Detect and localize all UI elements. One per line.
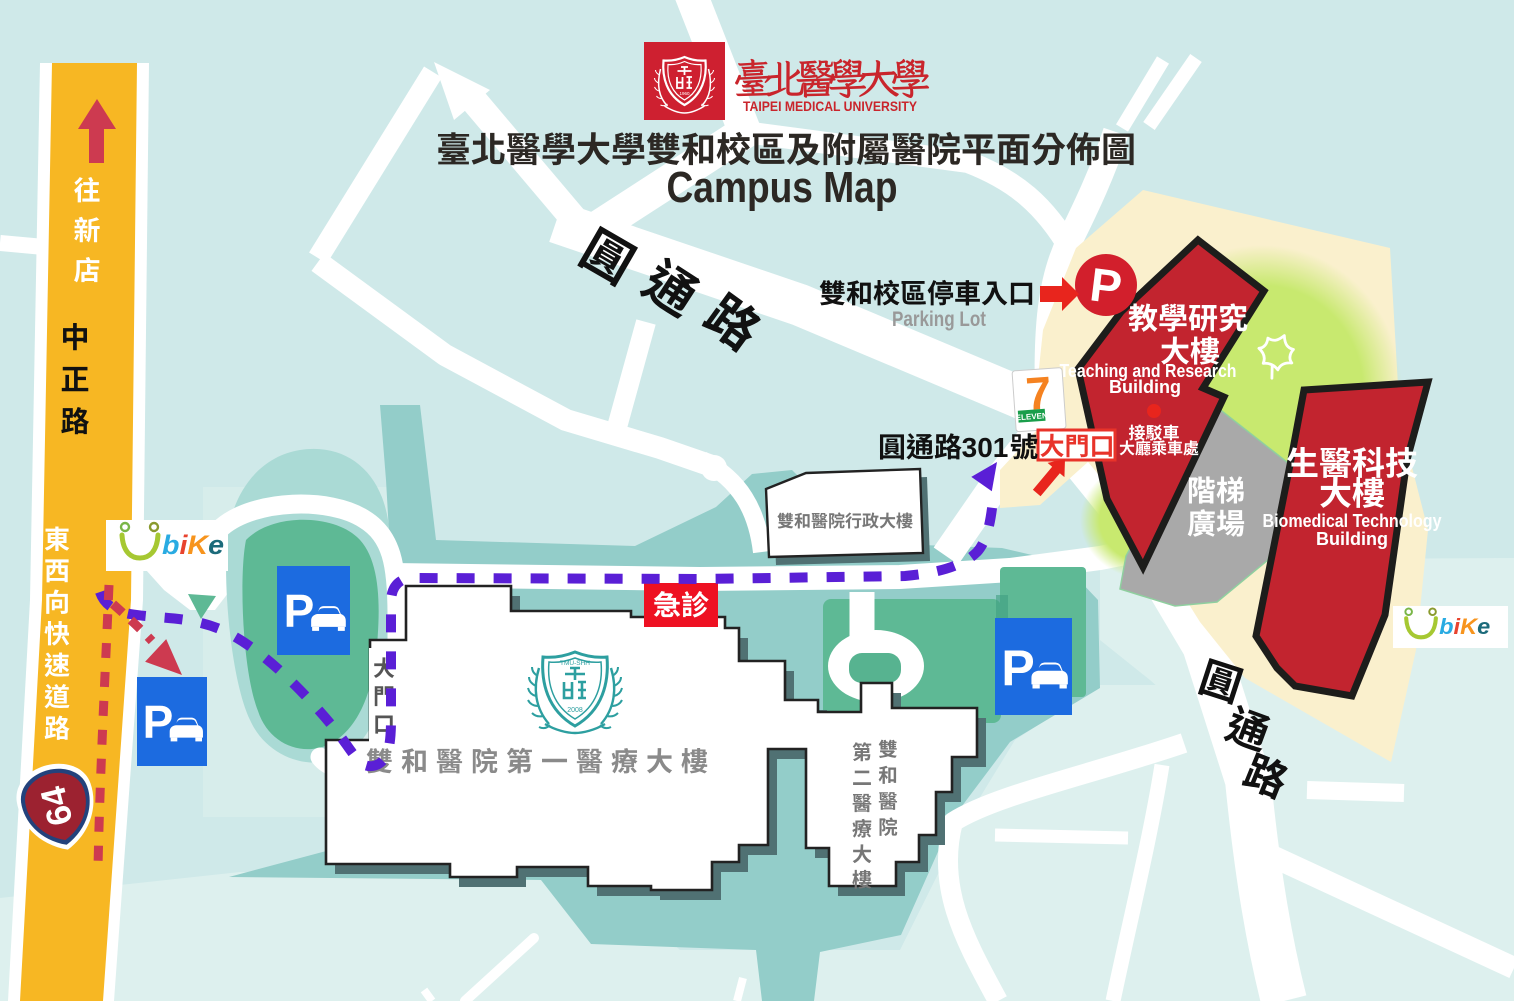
svg-text:TMU-SHH: TMU-SHH: [560, 660, 590, 667]
svg-text:Building: Building: [1316, 529, 1388, 549]
svg-text:Campus Map: Campus Map: [667, 163, 898, 212]
svg-text:Biomedical Technology: Biomedical Technology: [1263, 511, 1442, 531]
svg-text:P: P: [143, 696, 174, 748]
svg-text:1960: 1960: [679, 91, 690, 96]
svg-text:Building: Building: [1109, 377, 1181, 397]
svg-text:P: P: [284, 585, 315, 637]
svg-text:P: P: [1087, 257, 1125, 313]
svg-text:301: 301: [962, 432, 1009, 463]
svg-text:TAIPEI MEDICAL UNIVERSITY: TAIPEI MEDICAL UNIVERSITY: [743, 98, 918, 114]
svg-text:2008: 2008: [567, 707, 583, 714]
svg-text:P: P: [1001, 640, 1034, 696]
svg-text:biKe: biKe: [162, 530, 224, 560]
svg-text:biKe: biKe: [1439, 614, 1490, 639]
svg-text:Parking Lot: Parking Lot: [892, 308, 986, 331]
